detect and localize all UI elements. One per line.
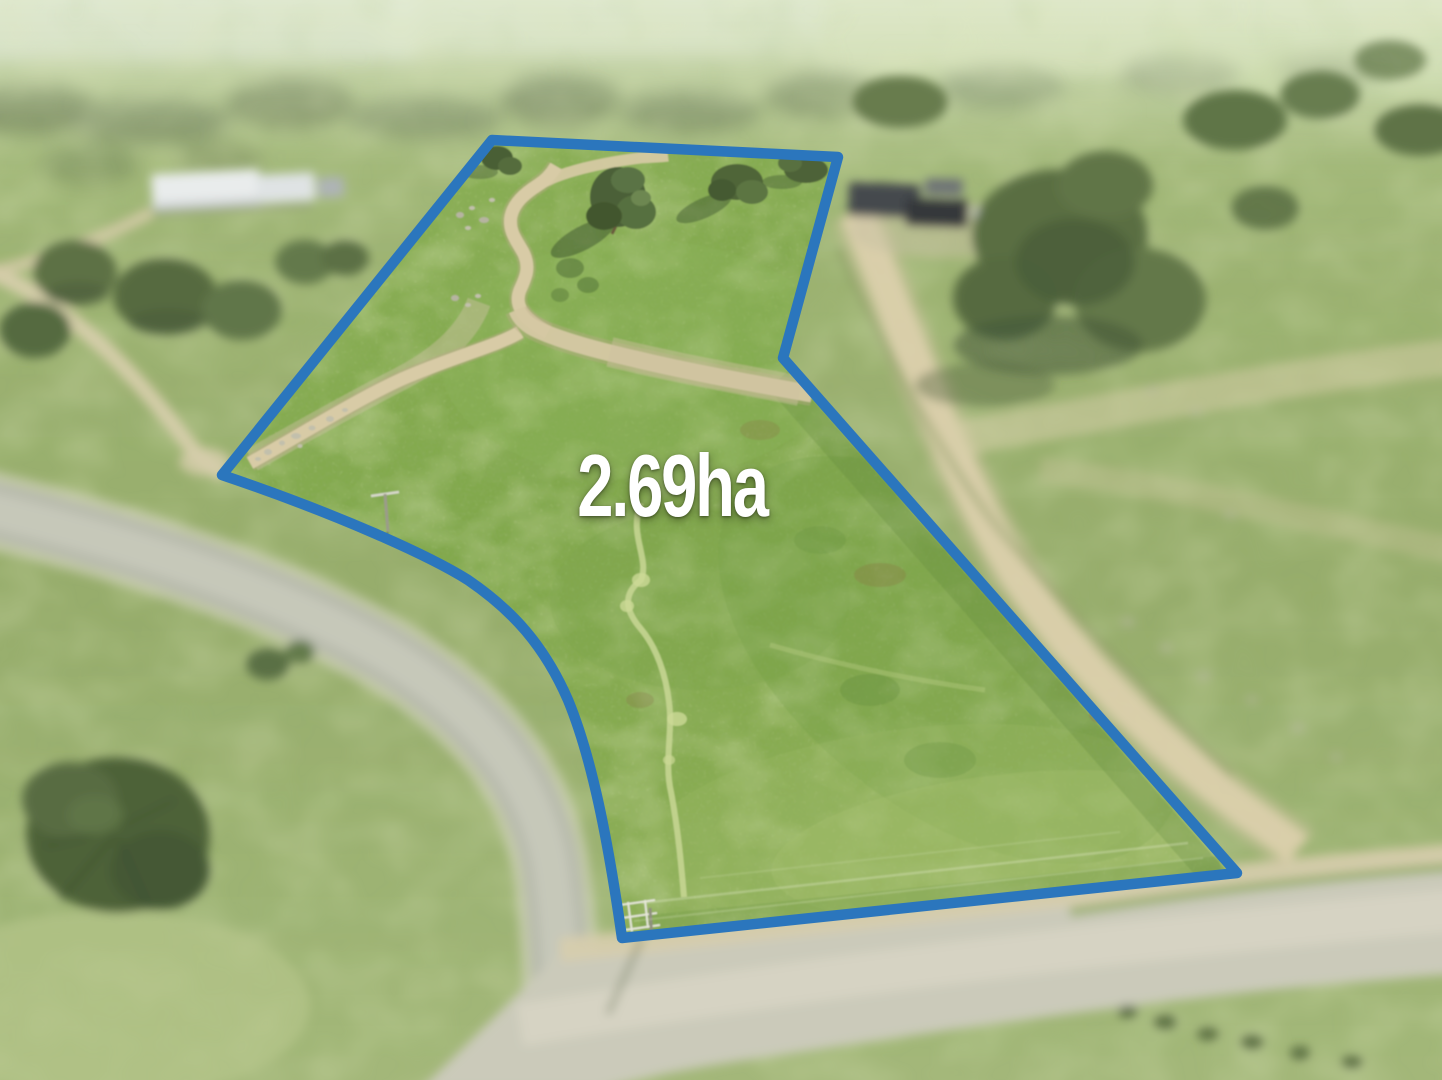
bush — [577, 277, 599, 293]
aerial-scene — [0, 0, 1442, 1080]
aerial-photo: 2.69ha — [0, 0, 1442, 1080]
bush — [556, 258, 584, 278]
bush — [551, 288, 569, 302]
